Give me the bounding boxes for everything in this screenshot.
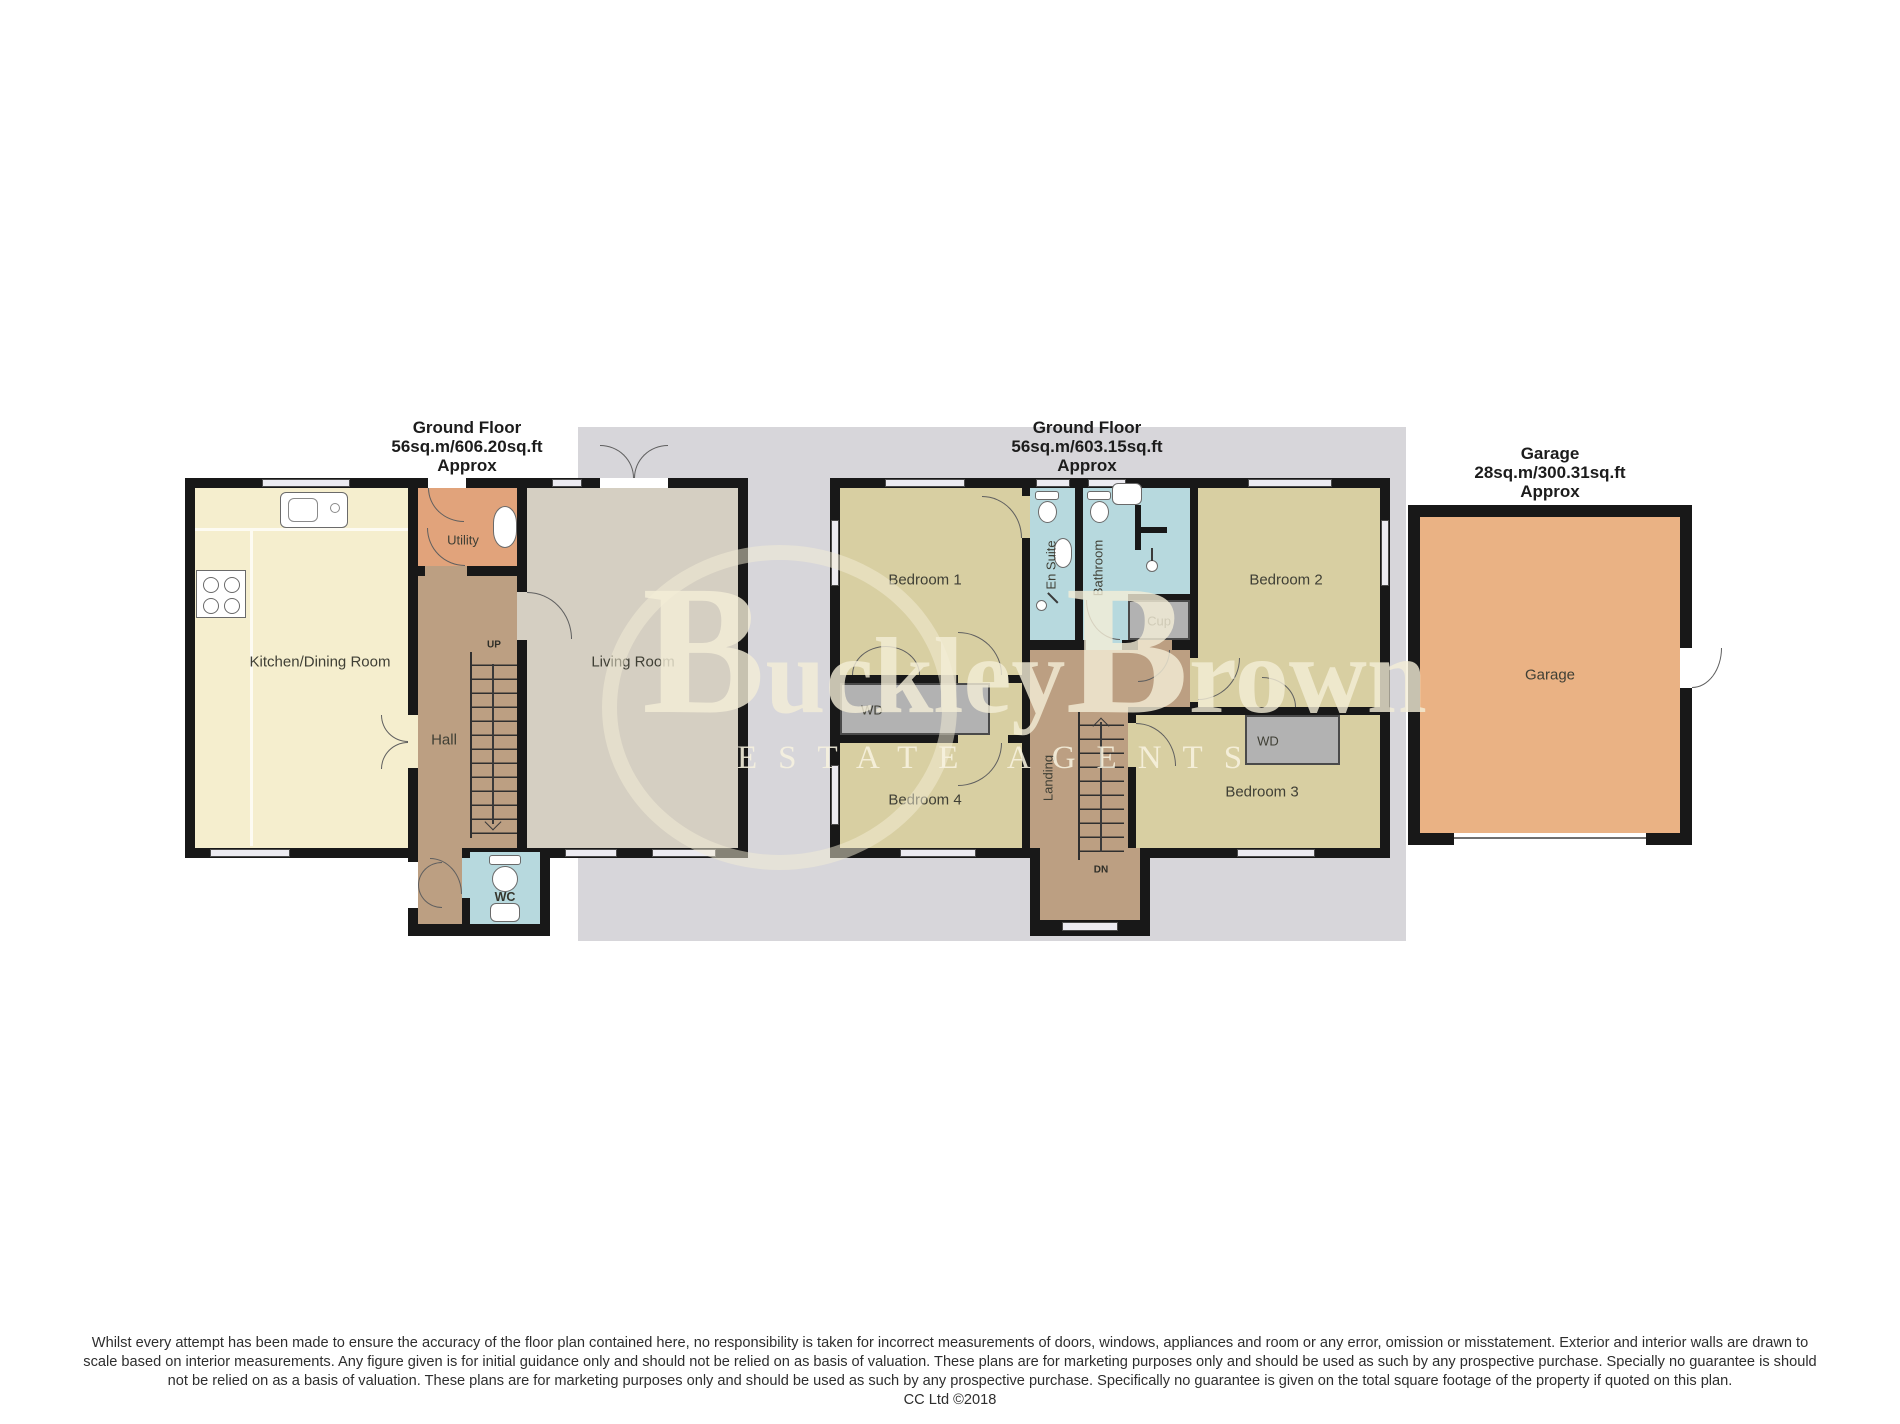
kitchen-hall-door-gap — [408, 715, 418, 768]
bedroom4-label: Bedroom 4 — [888, 792, 961, 809]
bathroom-basin — [1112, 483, 1142, 505]
bedroom4-left-window — [831, 765, 839, 825]
middle-plan-title: Ground Floor 56sq.m/603.15sq.ft Approx — [1011, 418, 1162, 475]
wc-toilet-cistern — [489, 855, 521, 865]
bathroom-shower-head — [1146, 560, 1158, 572]
left-title-line1: Ground Floor — [391, 418, 542, 437]
kitchen-counter-edge-top — [195, 528, 408, 531]
wc-toilet-bowl — [492, 866, 518, 892]
garage-side-door-gap — [1680, 648, 1692, 688]
ensuite-shower-head — [1036, 600, 1047, 611]
kitchen-sink-tap — [330, 503, 340, 513]
left-title-line3: Approx — [391, 456, 542, 475]
landing-extension-window — [1062, 922, 1118, 931]
garage-door-line — [1448, 837, 1652, 839]
middle-title-line1: Ground Floor — [1011, 418, 1162, 437]
bedroom1-top-window — [885, 479, 965, 487]
kitchen-label: Kitchen/Dining Room — [250, 654, 391, 671]
disclaimer-line-1: Whilst every attempt has been made to en… — [0, 1334, 1900, 1353]
garage-side-door-arc — [1692, 648, 1722, 688]
kitchen-bottom-window — [210, 849, 290, 857]
bedroom4-door-gap — [958, 735, 1008, 743]
utility-label: Utility — [447, 533, 479, 548]
living-bottom-window-1 — [565, 849, 617, 857]
left-title-line2: 56sq.m/606.20sq.ft — [391, 437, 542, 456]
hob-ring-3 — [203, 598, 219, 614]
stairs-down-arrow-shaft — [1100, 722, 1102, 852]
front-door-gap — [408, 862, 418, 908]
landing-label: Landing — [1041, 755, 1056, 801]
ensuite-toilet-cistern — [1035, 491, 1059, 500]
bedroom3-label: Bedroom 3 — [1225, 784, 1298, 801]
wc-door-gap — [462, 858, 470, 898]
bathroom-door-gap — [1086, 640, 1122, 650]
ensuite-label: En Suite — [1044, 540, 1059, 589]
bedroom2-right-window — [1381, 520, 1389, 586]
cup-label: Cup — [1147, 614, 1171, 629]
garage-title-line3: Approx — [1474, 482, 1625, 501]
floorplan-page: Ground Floor 56sq.m/606.20sq.ft Approx G… — [0, 0, 1900, 1424]
bedroom3-door-gap — [1128, 723, 1136, 767]
ensuite-top-window — [1036, 479, 1070, 487]
living-label: Living Room — [591, 654, 674, 671]
garage-title-line1: Garage — [1474, 444, 1625, 463]
living-top-window — [552, 479, 582, 487]
hall-label: Hall — [431, 732, 457, 749]
cup-door-gap — [1138, 640, 1172, 650]
bedroom2-label: Bedroom 2 — [1249, 572, 1322, 589]
garage-door-opening — [1448, 833, 1652, 845]
bedroom4-bottom-window — [900, 849, 976, 857]
living-bottom-window-2 — [652, 849, 716, 857]
kitchen-counter-edge-left — [250, 528, 253, 846]
wd-strip-filler — [990, 683, 1022, 735]
disclaimer-line-2: scale based on interior measurements. An… — [0, 1353, 1900, 1372]
ensuite-toilet-bowl — [1038, 501, 1057, 523]
stairs-up-arrow-shaft — [492, 664, 494, 824]
bedroom2-top-window — [1248, 479, 1332, 487]
bedroom1-label: Bedroom 1 — [888, 572, 961, 589]
garage-door-nub-left — [1448, 833, 1454, 845]
wd-right-label: WD — [1257, 734, 1279, 749]
wc-label: WC — [495, 890, 516, 904]
hob-ring-1 — [203, 577, 219, 593]
bedroom2-door-gap — [1190, 658, 1198, 702]
bathroom-toilet-bowl — [1090, 501, 1109, 523]
stairs-down-label: DN — [1094, 865, 1108, 876]
bathroom-shower-stem — [1151, 548, 1153, 561]
utility-exterior-door-gap — [428, 478, 466, 488]
living-hall-door-gap — [517, 592, 527, 640]
middle-title-line3: Approx — [1011, 456, 1162, 475]
garage-title-line2: 28sq.m/300.31sq.ft — [1474, 463, 1625, 482]
bedroom1-left-window — [831, 520, 839, 586]
kitchen-top-window — [262, 479, 350, 487]
ensuite-door-gap — [1022, 496, 1030, 538]
utility-sink — [493, 506, 517, 548]
bathroom-toilet-cistern — [1087, 491, 1111, 500]
left-plan-title: Ground Floor 56sq.m/606.20sq.ft Approx — [391, 418, 542, 475]
bathroom-label: Bathroom — [1091, 540, 1106, 596]
stairs-up-label: UP — [487, 640, 501, 651]
wd-left-label: WD — [861, 703, 883, 718]
utility-hall-door-gap — [425, 566, 467, 576]
hob-ring-4 — [224, 598, 240, 614]
bedroom1-door-gap — [958, 675, 1008, 683]
hob — [196, 570, 246, 618]
french-door-gap — [600, 478, 668, 488]
disclaimer-line-3: not be relied on as a basis of valuation… — [0, 1372, 1900, 1391]
bedroom3-bottom-window — [1237, 849, 1315, 857]
wc-basin — [490, 903, 520, 922]
disclaimer-line-4: CC Ltd ©2018 — [0, 1391, 1900, 1410]
bathroom-inner-wall-h — [1135, 527, 1167, 533]
hob-ring-2 — [224, 577, 240, 593]
garage-label: Garage — [1525, 667, 1575, 684]
garage-door-nub-right — [1646, 833, 1652, 845]
garage-plan-title: Garage 28sq.m/300.31sq.ft Approx — [1474, 444, 1625, 501]
middle-title-line2: 56sq.m/603.15sq.ft — [1011, 437, 1162, 456]
kitchen-sink-bowl — [288, 498, 318, 522]
